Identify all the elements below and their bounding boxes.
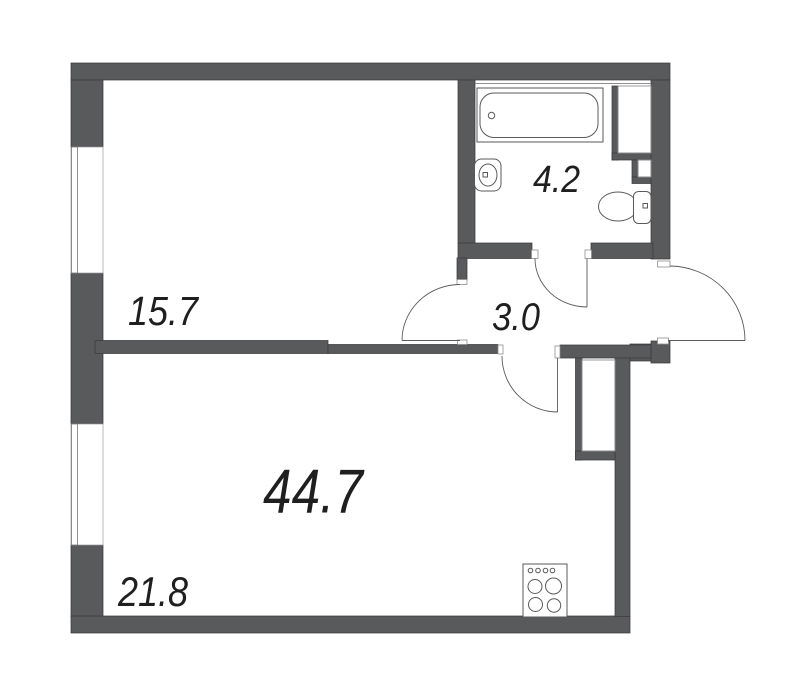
- door-jamb: [658, 338, 669, 344]
- living-room-area-label: 15.7: [128, 288, 200, 334]
- duct-shaft: [618, 86, 651, 153]
- toilet-button: [643, 204, 648, 209]
- area-labels: 15.7 4.2 3.0 44.7 21.8: [117, 159, 580, 615]
- floorplan-page: 15.7 4.2 3.0 44.7 21.8: [0, 0, 800, 699]
- toilet-tank: [634, 192, 652, 224]
- window-frame: [72, 147, 78, 273]
- kitchen-room-door: [502, 356, 558, 412]
- door-swing-arc: [670, 266, 745, 341]
- hallway-area-label: 3.0: [492, 296, 540, 339]
- wall-segment: [576, 451, 616, 460]
- wall-segment: [458, 243, 532, 259]
- total-area-label: 44.7: [263, 458, 365, 527]
- wall-segment: [71, 80, 103, 147]
- bathroom-area-label: 4.2: [533, 159, 580, 201]
- wall-segment: [615, 355, 630, 617]
- wall-segment: [576, 358, 583, 460]
- duct-box: [638, 160, 651, 177]
- wall-segment: [651, 80, 670, 259]
- toilet-icon: [599, 192, 652, 224]
- wall-segment: [71, 63, 670, 80]
- door-swing-arc: [535, 259, 587, 308]
- kitchen-area-label: 21.8: [117, 568, 188, 615]
- wall-segment: [458, 80, 475, 243]
- window-living-room: [71, 147, 103, 273]
- bathroom-door: [535, 259, 587, 308]
- wall-segment: [632, 177, 651, 184]
- entrance-door: [668, 266, 745, 341]
- wall-segment: [632, 160, 638, 177]
- window-frame: [72, 424, 78, 545]
- floorplan-svg: 15.7 4.2 3.0 44.7 21.8: [0, 0, 800, 699]
- wall-segment: [457, 258, 467, 280]
- wall-segment: [560, 345, 651, 358]
- wall-segment: [612, 86, 618, 160]
- bathtub-inner: [480, 93, 598, 138]
- vent-shaft: [582, 360, 615, 451]
- bathtub-outer: [477, 88, 603, 142]
- door-jamb: [457, 280, 467, 285]
- door-jamb: [532, 250, 539, 259]
- door-jamb: [658, 261, 671, 267]
- wall-segment: [591, 243, 653, 259]
- door-jamb: [555, 346, 560, 358]
- door-swing-arc: [402, 285, 460, 341]
- doors: [402, 259, 745, 413]
- wall-segment: [71, 545, 103, 617]
- wall-segment: [612, 153, 651, 160]
- stove-icon: [523, 564, 567, 617]
- wall-segment: [328, 345, 498, 354]
- window-kitchen: [71, 424, 103, 545]
- wall-segment: [95, 341, 328, 354]
- door-swing-arc: [502, 356, 558, 412]
- walls: [71, 63, 670, 633]
- door-jamb: [585, 250, 592, 259]
- wall-segment: [71, 616, 630, 633]
- toilet-bowl: [599, 192, 638, 221]
- bathtub-drain: [488, 112, 494, 118]
- sink-icon: [475, 159, 502, 191]
- door-jambs: [457, 250, 670, 358]
- door-jamb: [498, 345, 503, 354]
- living-room-door: [402, 285, 460, 341]
- bathtub-icon: [477, 88, 603, 142]
